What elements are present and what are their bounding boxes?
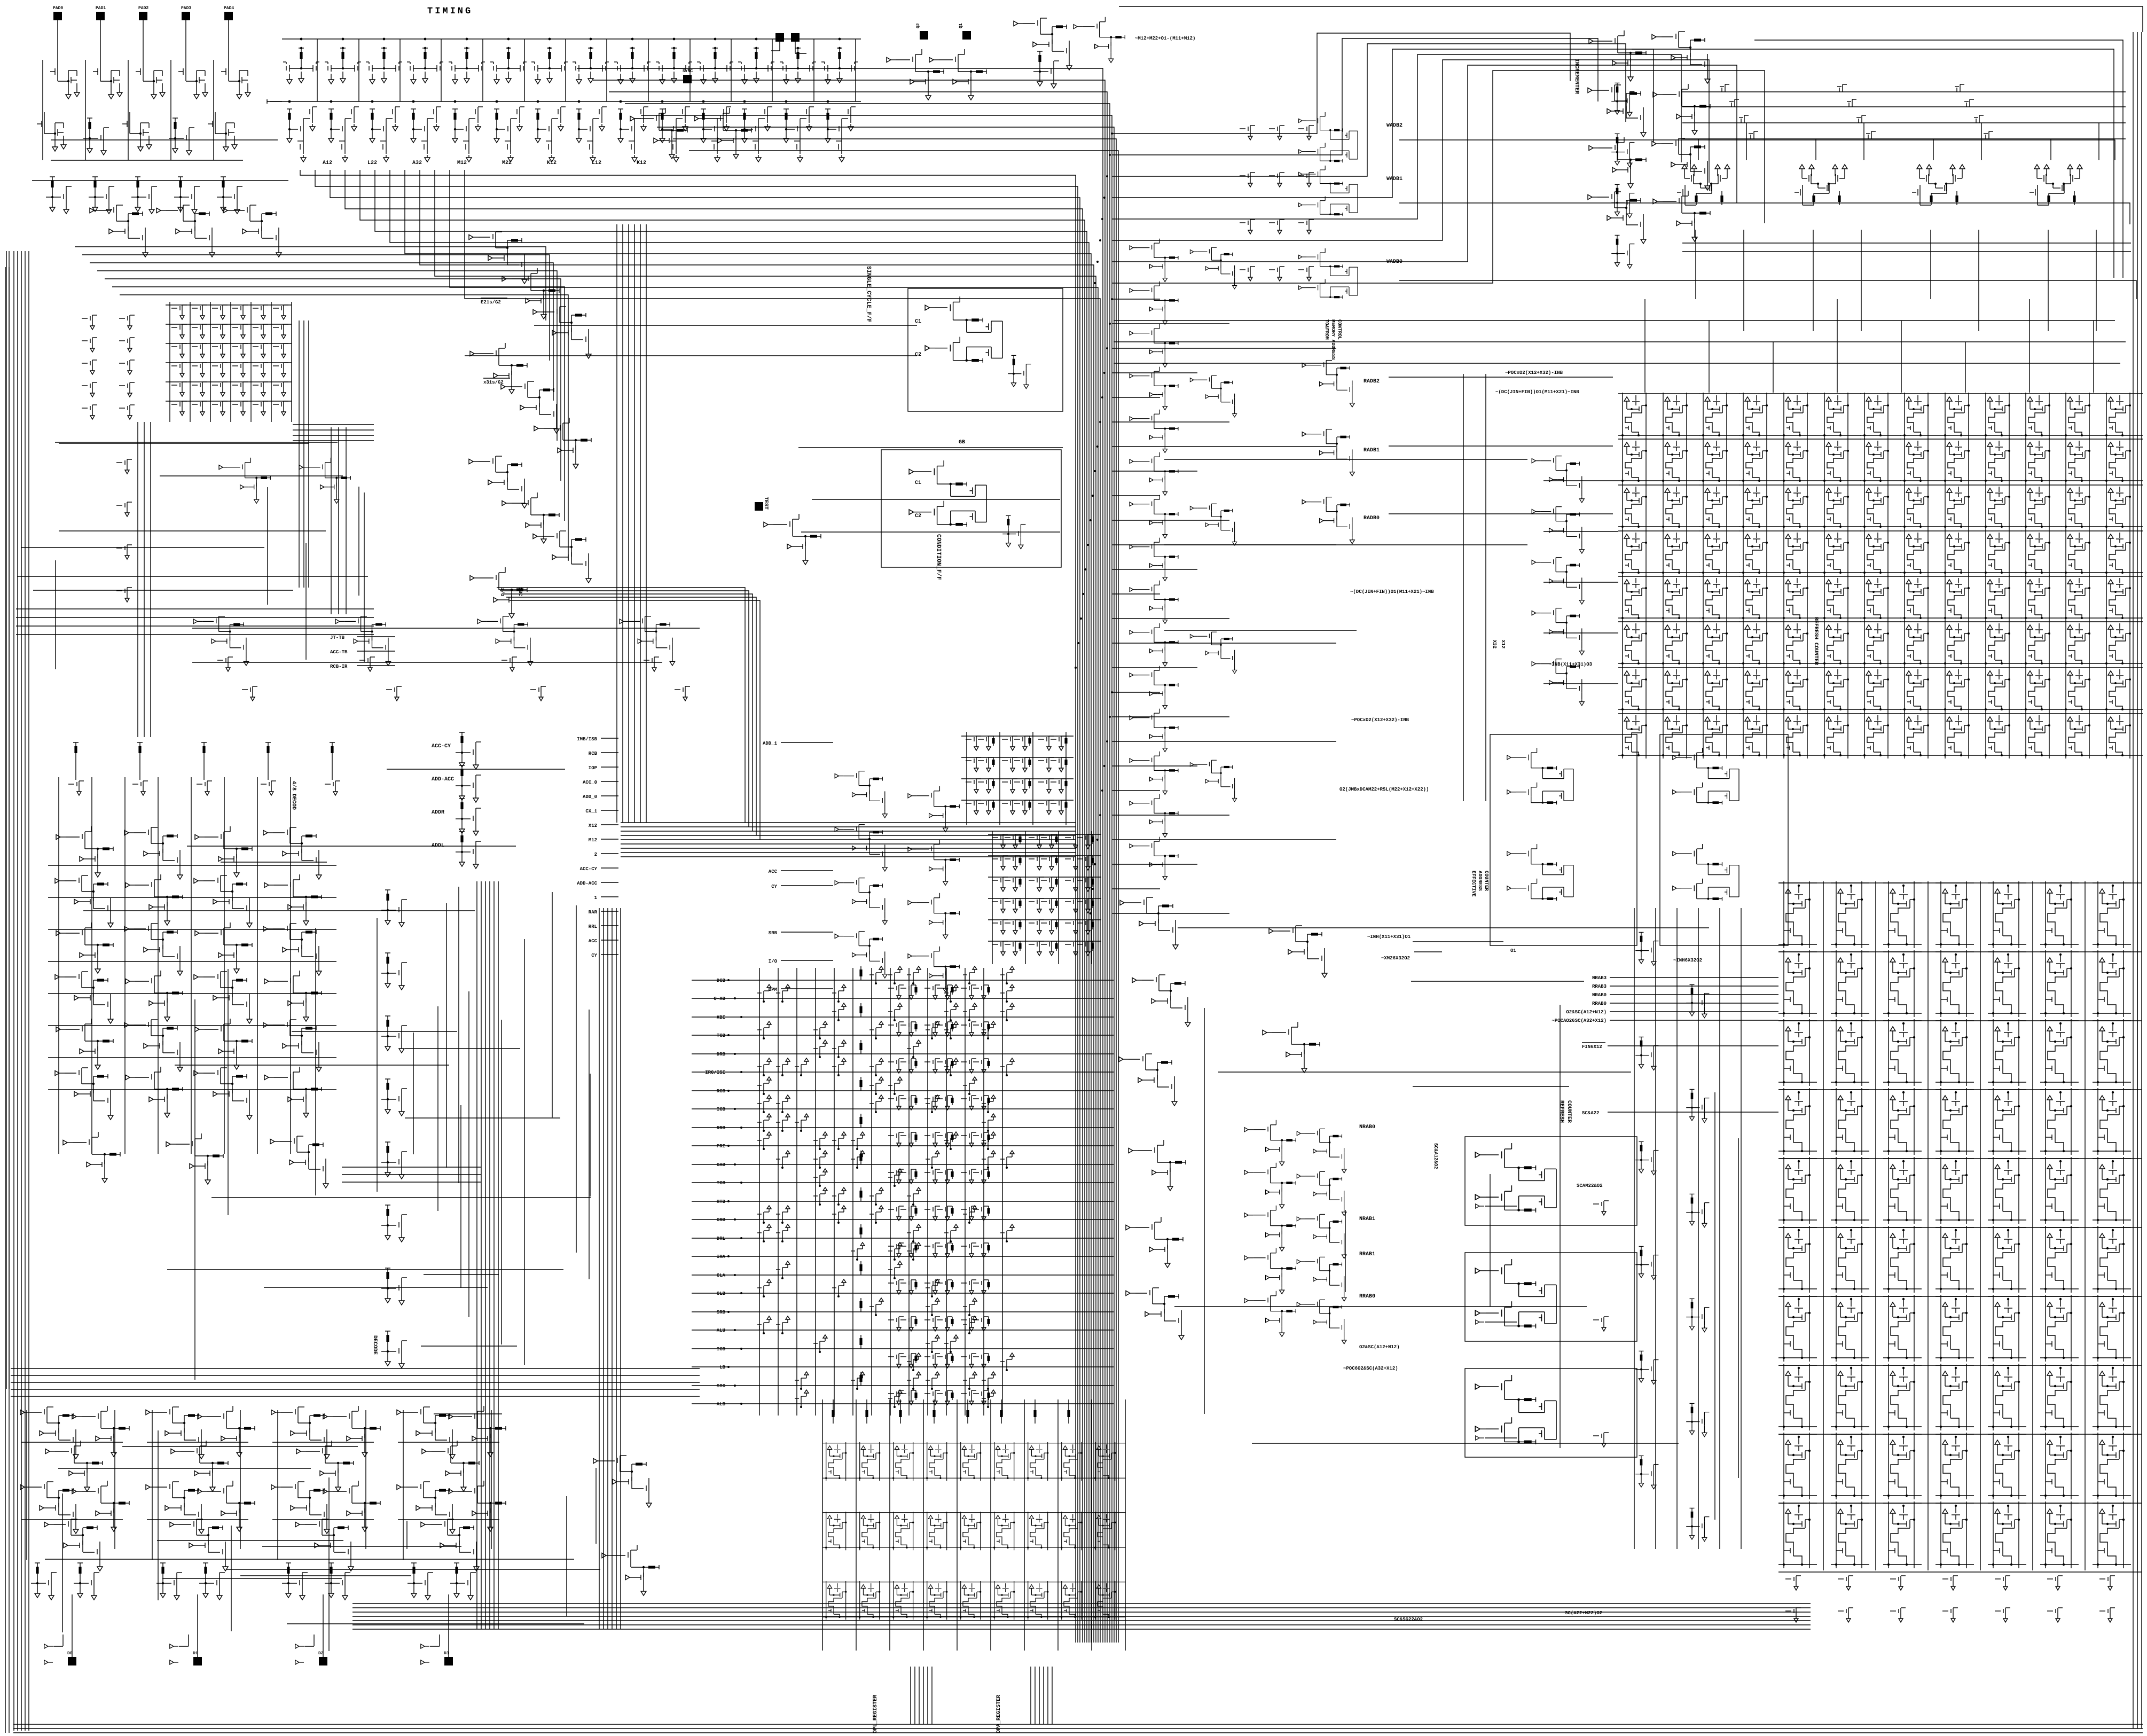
- svg-text:SBC: SBC: [518, 588, 523, 597]
- svg-text:SC&A12&O2: SC&A12&O2: [1433, 1143, 1438, 1169]
- svg-text:TIMING: TIMING: [427, 6, 473, 17]
- svg-text:WADB2: WADB2: [1386, 123, 1402, 129]
- svg-text:SC(A22+M22)O2: SC(A22+M22)O2: [1565, 1610, 1602, 1616]
- svg-text:SRB: SRB: [769, 930, 778, 936]
- svg-text:RRAB3: RRAB3: [1592, 984, 1607, 989]
- svg-text:ICB: ICB: [717, 1347, 726, 1352]
- svg-text:X32: X32: [1492, 640, 1497, 648]
- svg-text:TCB: TCB: [717, 1033, 726, 1038]
- svg-text:CONDITION_F/F: CONDITION_F/F: [935, 534, 942, 580]
- svg-text:A32: A32: [412, 160, 422, 166]
- svg-text:RRL: RRL: [589, 924, 597, 929]
- svg-text:REFRESH COUNTER: REFRESH COUNTER: [1813, 617, 1819, 665]
- svg-text:RRB: RRB: [717, 1125, 726, 1131]
- svg-text:L22: L22: [367, 160, 377, 166]
- svg-text:ALU: ALU: [717, 1328, 725, 1333]
- svg-text:~POC6O2&SC(A32+X12): ~POC6O2&SC(A32+X12): [1343, 1366, 1398, 1371]
- svg-text:COUNTER: COUNTER: [1566, 1100, 1572, 1123]
- svg-text:SC&A22: SC&A22: [1582, 1111, 1599, 1116]
- svg-text:OPL_REGISTER: OPL_REGISTER: [873, 1695, 879, 1733]
- svg-text:NRAB1: NRAB1: [1359, 1216, 1375, 1222]
- svg-text:TO&FROM: TO&FROM: [1324, 319, 1329, 340]
- svg-text:Q2: Q2: [916, 23, 921, 28]
- svg-text:K12: K12: [547, 160, 557, 166]
- svg-text:SRB: SRB: [717, 1310, 726, 1315]
- svg-text:~INH(X11+X31)O1: ~INH(X11+X31)O1: [1367, 934, 1411, 940]
- svg-text:WADB1: WADB1: [1386, 176, 1402, 182]
- svg-text:ADD-ACC: ADD-ACC: [432, 777, 454, 783]
- svg-text:PAD2: PAD2: [138, 6, 148, 11]
- svg-text:ACC: ACC: [769, 869, 778, 874]
- svg-text:~POCxO2(X12+X32)-INB: ~POCxO2(X12+X32)-INB: [1505, 370, 1563, 376]
- svg-text:ACC-TB: ACC-TB: [330, 650, 348, 655]
- svg-text:MEMORY ADDRESS: MEMORY ADDRESS: [1330, 319, 1336, 360]
- svg-text:CAB: CAB: [717, 1162, 726, 1168]
- svg-text:TCB: TCB: [717, 1180, 726, 1186]
- svg-text:E21s/G2: E21s/G2: [481, 300, 501, 305]
- svg-text:IRA: IRA: [717, 1254, 726, 1260]
- svg-text:RTB: RTB: [717, 1199, 726, 1205]
- svg-text:PAD4: PAD4: [224, 6, 234, 11]
- svg-text:RADB0: RADB0: [1364, 515, 1380, 521]
- svg-text:SCAM22&O2: SCAM22&O2: [1577, 1183, 1603, 1188]
- svg-text:ICB: ICB: [717, 1107, 726, 1112]
- svg-text:DECODE: DECODE: [372, 1335, 378, 1355]
- svg-text:L12: L12: [592, 160, 601, 166]
- svg-text:M22: M22: [502, 160, 512, 166]
- svg-text:TEST: TEST: [763, 497, 769, 510]
- svg-text:C1: C1: [915, 319, 921, 325]
- svg-text:PAD3: PAD3: [181, 6, 191, 11]
- svg-text:FIN6X12: FIN6X12: [1582, 1044, 1602, 1050]
- svg-text:X12: X12: [589, 823, 597, 828]
- svg-text:~INH6X32O2: ~INH6X32O2: [1673, 958, 1702, 963]
- svg-text:~POCxO2(X12+X32)-INB: ~POCxO2(X12+X32)-INB: [1351, 717, 1409, 723]
- svg-text:ACC_0: ACC_0: [583, 780, 597, 785]
- svg-text:CLB: CLB: [717, 1291, 726, 1296]
- svg-text:DCB: DCB: [717, 978, 726, 983]
- svg-text:ALB: ALB: [717, 1402, 726, 1407]
- svg-text:COUNTER: COUNTER: [1484, 871, 1489, 891]
- svg-text:Q1: Q1: [959, 23, 963, 28]
- svg-text:RRAB0: RRAB0: [1359, 1294, 1375, 1300]
- svg-text:O-XB: O-XB: [714, 996, 725, 1002]
- svg-text:2: 2: [594, 852, 597, 857]
- svg-text:OPM: OPM: [769, 987, 777, 992]
- svg-text:RRAB1: RRAB1: [1359, 1252, 1375, 1257]
- svg-text:PRI: PRI: [717, 1144, 725, 1149]
- svg-text:REFRESH: REFRESH: [1558, 1100, 1564, 1123]
- svg-text:ADD-ACC: ADD-ACC: [577, 881, 597, 886]
- svg-text:DRL: DRL: [717, 1236, 725, 1241]
- svg-text:I/O: I/O: [499, 588, 505, 597]
- svg-text:CLA: CLA: [717, 1273, 726, 1278]
- svg-text:OPA_REGISTER: OPA_REGISTER: [996, 1695, 1002, 1733]
- svg-text:ADD_1: ADD_1: [763, 741, 778, 746]
- svg-text:A12: A12: [323, 160, 332, 166]
- svg-text:SYNC: SYNC: [683, 69, 693, 74]
- svg-text:O2(JMBxDCAM22+RSL(M22+X12+X22): O2(JMBxDCAM22+RSL(M22+X12+X22)): [1339, 787, 1429, 792]
- svg-text:CONTROL: CONTROL: [1337, 319, 1342, 340]
- svg-text:CX_1: CX_1: [585, 809, 597, 814]
- svg-text:X12: X12: [1500, 640, 1506, 648]
- svg-text:NRAB0: NRAB0: [1592, 992, 1607, 998]
- svg-text:~XM26X32O2: ~XM26X32O2: [1381, 956, 1410, 961]
- svg-text:ADDR: ADDR: [432, 810, 444, 816]
- svg-text:RADB1: RADB1: [1364, 448, 1380, 453]
- svg-text:SC&SG22&O2: SC&SG22&O2: [1394, 1617, 1423, 1622]
- svg-text:CRB: CRB: [717, 1217, 726, 1223]
- svg-text:O2&SC(A12+N12): O2&SC(A12+N12): [1566, 1010, 1607, 1015]
- svg-text:CY: CY: [591, 953, 597, 958]
- svg-text:JT-TB: JT-TB: [330, 635, 345, 640]
- svg-text:RCB: RCB: [717, 1089, 726, 1094]
- svg-text:x31s/G2: x31s/G2: [483, 380, 504, 385]
- svg-text:O1: O1: [1510, 948, 1516, 953]
- svg-text:RCB-IR: RCB-IR: [330, 664, 348, 669]
- svg-text:O2&SC(A12+N12): O2&SC(A12+N12): [1359, 1344, 1400, 1350]
- svg-text:RADB2: RADB2: [1364, 379, 1380, 385]
- svg-text:SINGLE_CYCLE_F/F: SINGLE_CYCLE_F/F: [865, 266, 872, 323]
- svg-text:LB: LB: [719, 1365, 725, 1370]
- svg-text:INCREMENTER: INCREMENTER: [1573, 59, 1579, 94]
- svg-text:4/8 DECOD: 4/8 DECOD: [291, 781, 297, 810]
- svg-text:~(DC(JIN+FIN))O1(M11+X21)~INB: ~(DC(JIN+FIN))O1(M11+X21)~INB: [1350, 589, 1434, 595]
- svg-text:PAD1: PAD1: [96, 6, 106, 11]
- svg-text:C2: C2: [915, 513, 921, 519]
- svg-text:GB: GB: [959, 440, 965, 445]
- svg-text:CY: CY: [771, 884, 777, 889]
- svg-text:EFFECTIVE: EFFECTIVE: [1471, 871, 1476, 897]
- svg-text:~(DC(JIN+FIN))O1(M11+X21)~INB: ~(DC(JIN+FIN))O1(M11+X21)~INB: [1495, 389, 1579, 395]
- svg-text:ACC-CY: ACC-CY: [432, 744, 451, 749]
- svg-text:M12: M12: [589, 838, 597, 843]
- svg-text:I/O: I/O: [769, 959, 778, 964]
- svg-text:C2: C2: [915, 352, 921, 358]
- svg-text:ADD_0: ADD_0: [583, 794, 597, 800]
- svg-text:K12: K12: [637, 160, 646, 166]
- svg-text:IMB/ISB: IMB/ISB: [577, 737, 597, 742]
- svg-text:IRC/ISI: IRC/ISI: [705, 1070, 725, 1075]
- svg-text:ACC: ACC: [589, 939, 598, 944]
- svg-text:1: 1: [594, 895, 598, 901]
- svg-text:RCB: RCB: [589, 751, 598, 756]
- svg-text:WADB0: WADB0: [1386, 259, 1402, 265]
- svg-text:M12: M12: [457, 160, 467, 166]
- svg-text:C1: C1: [915, 480, 921, 486]
- svg-text:SIG: SIG: [717, 1383, 725, 1389]
- svg-text:ACC-CY: ACC-CY: [580, 866, 598, 872]
- svg-text:IOP: IOP: [589, 765, 598, 771]
- svg-text:DRB: DRB: [717, 1052, 726, 1057]
- svg-text:NRAB0: NRAB0: [1359, 1124, 1375, 1130]
- svg-text:XBI: XBI: [717, 1015, 725, 1020]
- svg-text:PAD0: PAD0: [53, 6, 63, 11]
- svg-text:RAR: RAR: [589, 910, 598, 915]
- svg-text:~M12+M22+O1-(M11+M12): ~M12+M22+O1-(M11+M12): [1135, 36, 1195, 41]
- svg-text:RRAB0: RRAB0: [1592, 1001, 1607, 1006]
- svg-text:ADDRESS: ADDRESS: [1477, 871, 1483, 891]
- svg-text:NRAB3: NRAB3: [1592, 975, 1607, 981]
